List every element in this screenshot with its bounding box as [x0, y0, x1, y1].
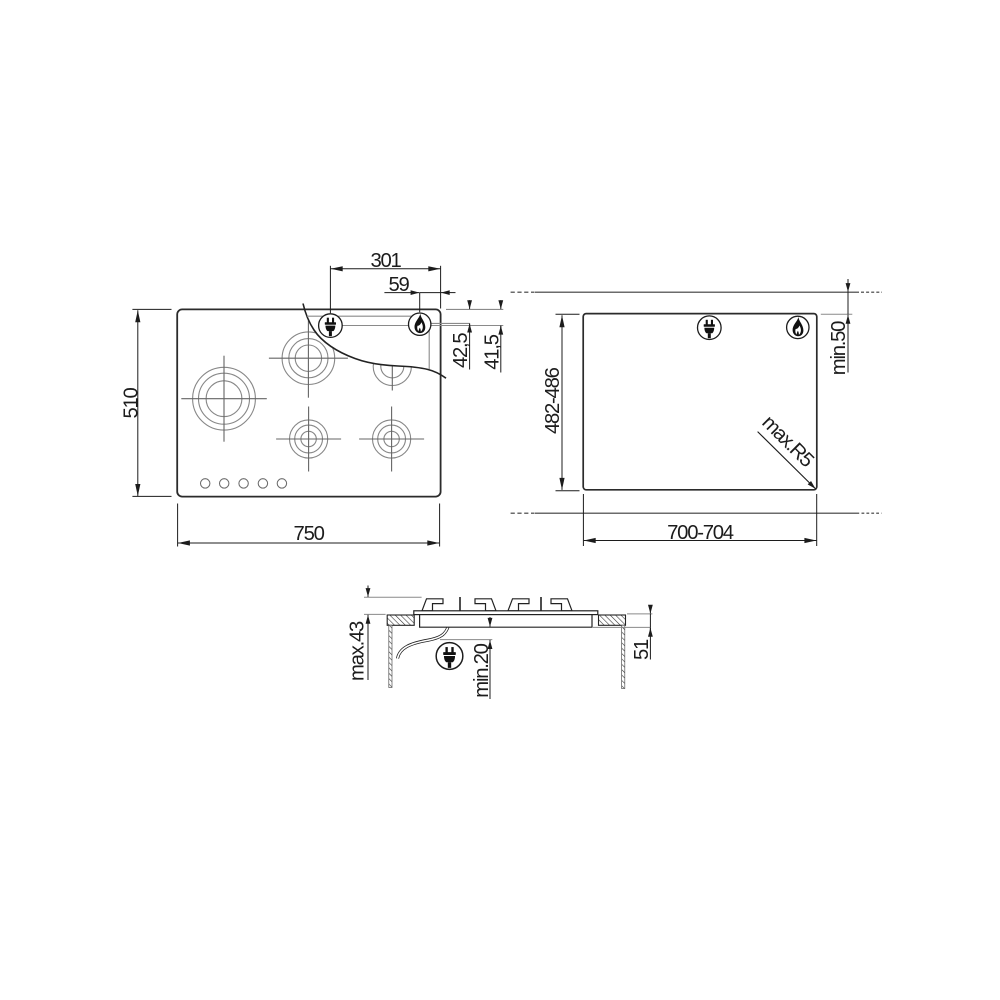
- svg-text:750: 750: [294, 523, 325, 545]
- svg-text:700-704: 700-704: [667, 522, 734, 544]
- svg-text:510: 510: [121, 387, 143, 418]
- svg-text:301: 301: [370, 250, 401, 272]
- svg-text:41,5: 41,5: [481, 334, 503, 369]
- svg-text:min.20: min.20: [471, 643, 493, 697]
- svg-text:482-486: 482-486: [542, 367, 564, 434]
- svg-text:min.50: min.50: [828, 321, 850, 375]
- svg-text:42,5: 42,5: [450, 333, 472, 368]
- svg-text:51: 51: [631, 639, 653, 660]
- svg-text:59: 59: [388, 274, 409, 296]
- svg-text:max.43: max.43: [347, 621, 369, 681]
